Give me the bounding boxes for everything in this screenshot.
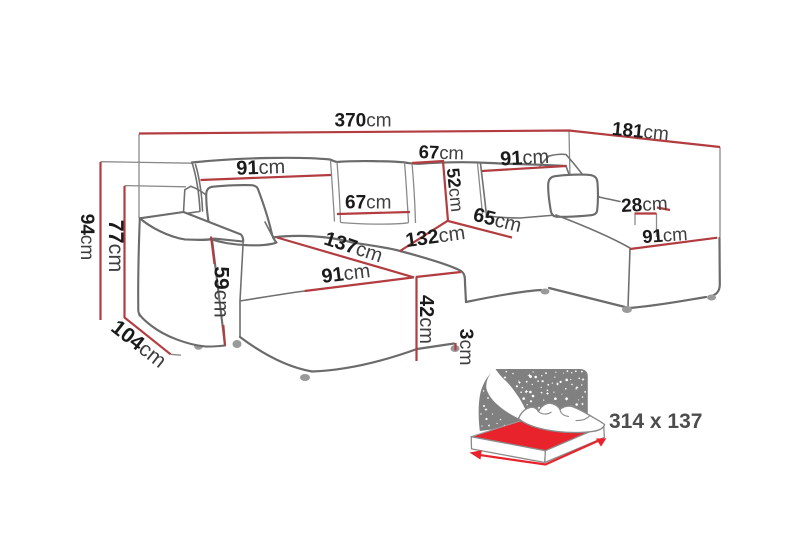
- svg-text:77cm: 77cm: [104, 220, 128, 273]
- svg-text:42cm: 42cm: [415, 295, 437, 344]
- svg-text:314 x 137: 314 x 137: [609, 410, 702, 433]
- svg-text:59cm: 59cm: [210, 266, 233, 317]
- svg-text:67cm: 67cm: [418, 141, 464, 164]
- svg-text:3cm: 3cm: [455, 329, 477, 366]
- svg-text:67cm: 67cm: [345, 193, 391, 214]
- svg-text:91cm: 91cm: [500, 146, 550, 171]
- svg-text:91cm: 91cm: [236, 156, 286, 180]
- svg-text:91cm: 91cm: [642, 223, 689, 247]
- svg-text:28cm: 28cm: [621, 194, 669, 217]
- svg-text:370cm: 370cm: [335, 111, 392, 132]
- svg-text:94cm: 94cm: [76, 214, 97, 260]
